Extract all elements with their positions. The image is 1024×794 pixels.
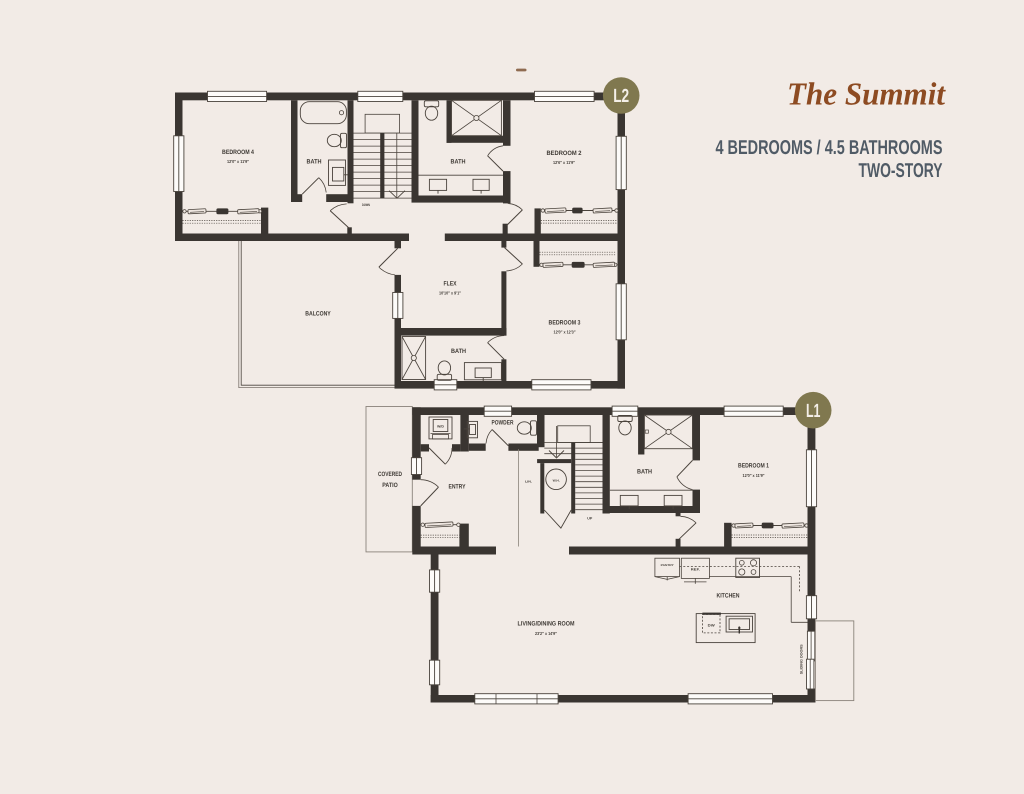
svg-text:4 BEDROOMS / 4.5 BATHROOMS: 4 BEDROOMS / 4.5 BATHROOMS [716,137,943,159]
svg-text:SLIDING DOORS: SLIDING DOORS [799,643,803,674]
svg-text:12′0″ x 11′9″: 12′0″ x 11′9″ [227,159,249,164]
svg-text:TWO-STORY: TWO-STORY [859,160,943,182]
svg-text:POWDER: POWDER [492,420,514,427]
svg-text:23′2″ x 14′9″: 23′2″ x 14′9″ [535,631,557,636]
svg-text:BATH: BATH [451,159,466,166]
svg-text:REF.: REF. [691,568,700,572]
svg-text:BATH: BATH [637,469,652,476]
svg-text:PATIO: PATIO [382,482,398,489]
svg-text:BEDROOM 1: BEDROOM 1 [738,463,769,470]
svg-text:PANTRY: PANTRY [661,563,674,567]
svg-text:L1: L1 [806,401,821,422]
svg-text:COVERED: COVERED [378,471,402,478]
svg-text:DOWN: DOWN [362,203,370,207]
svg-text:UP: UP [587,517,593,521]
svg-text:LIN.: LIN. [525,480,532,484]
svg-text:W.H.: W.H. [553,478,560,482]
svg-text:10′10″ x 9′1″: 10′10″ x 9′1″ [439,291,461,296]
svg-text:12′6″ x 11′9″: 12′6″ x 11′9″ [553,160,575,165]
svg-text:BEDROOM 2: BEDROOM 2 [547,150,582,157]
svg-text:KITCHEN: KITCHEN [717,593,740,600]
svg-text:12′0″ x 11′9″: 12′0″ x 11′9″ [743,473,765,478]
svg-text:The Summit: The Summit [787,75,946,111]
svg-text:FLEX: FLEX [444,281,458,288]
svg-text:BEDROOM 3: BEDROOM 3 [549,320,581,327]
svg-text:L2: L2 [613,86,629,107]
svg-text:W/D: W/D [437,425,445,429]
svg-text:BATH: BATH [451,348,466,355]
svg-text:BEDROOM 4: BEDROOM 4 [222,149,254,156]
svg-text:12′0″ x 12′3″: 12′0″ x 12′3″ [554,330,576,335]
svg-text:ENTRY: ENTRY [449,484,467,491]
svg-text:BALCONY: BALCONY [305,311,331,318]
svg-text:BATH: BATH [307,158,322,165]
svg-text:DW: DW [708,624,716,628]
svg-text:LIVING/DINING ROOM: LIVING/DINING ROOM [518,621,575,628]
